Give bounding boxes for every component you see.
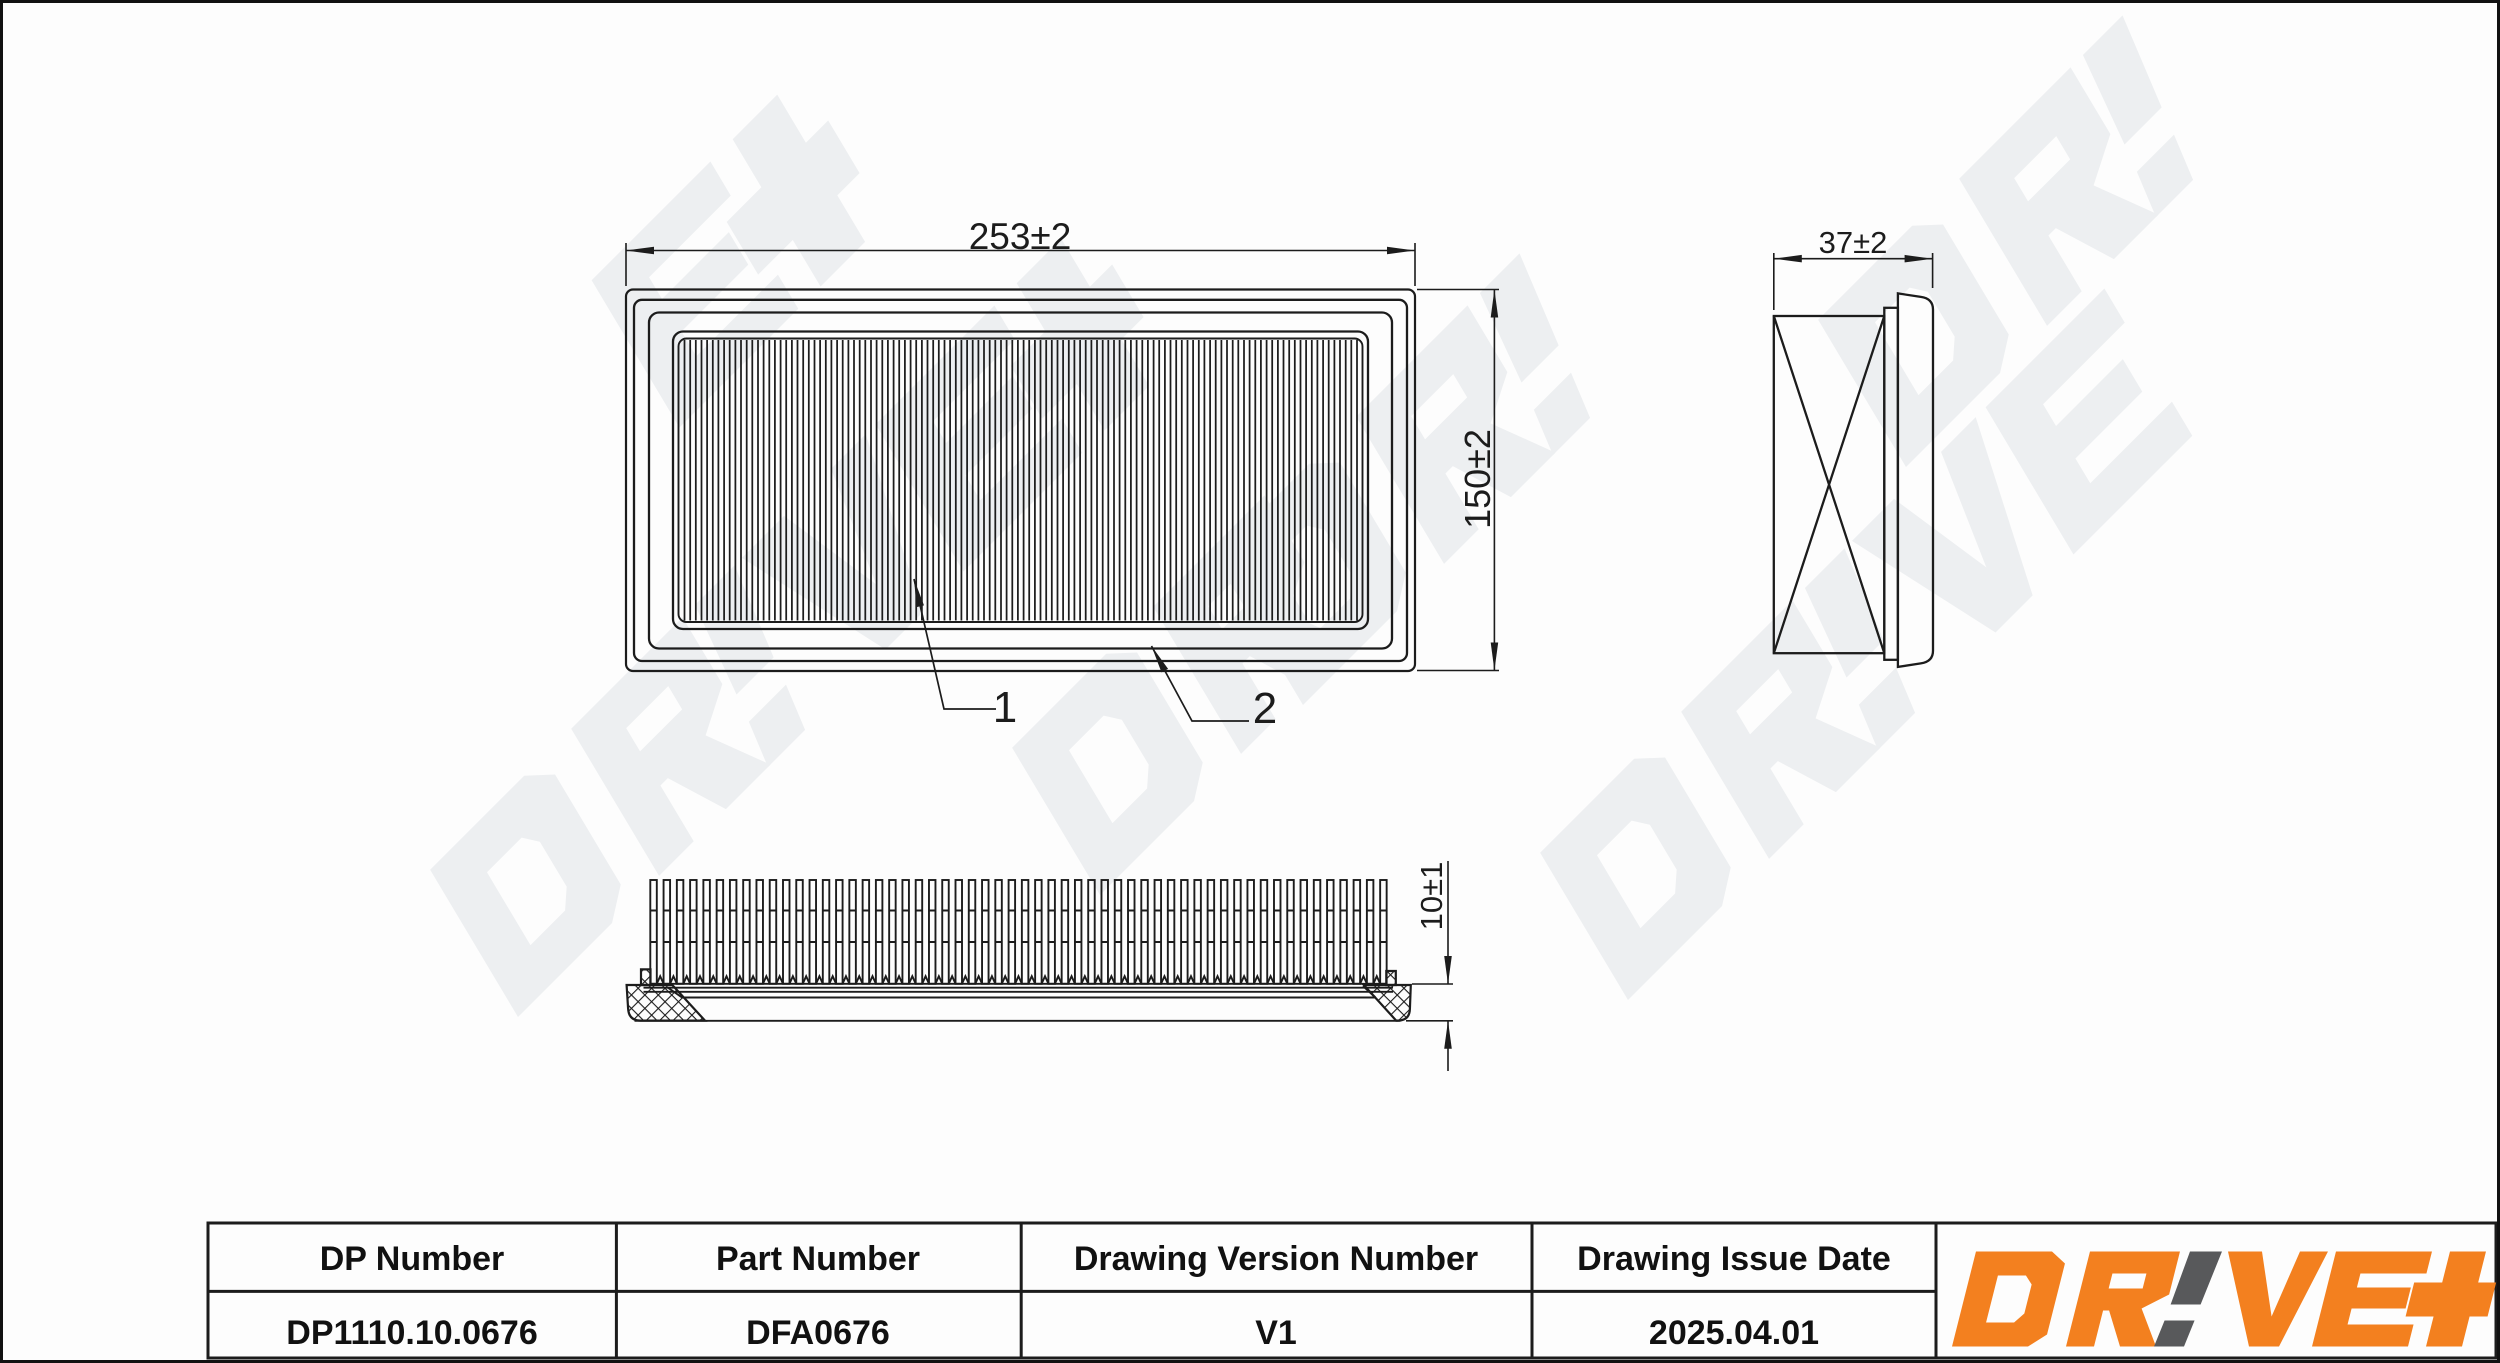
- svg-text:10±1: 10±1: [1414, 862, 1449, 931]
- svg-text:150±2: 150±2: [1457, 429, 1498, 529]
- svg-text:DP1110.10.0676: DP1110.10.0676: [286, 1314, 537, 1352]
- svg-text:Drawing Version Number: Drawing Version Number: [1074, 1240, 1478, 1278]
- svg-text:2: 2: [1253, 684, 1277, 733]
- svg-text:2025.04.01: 2025.04.01: [1649, 1314, 1819, 1352]
- svg-text:DP Number: DP Number: [320, 1240, 505, 1278]
- svg-text:37±2: 37±2: [1819, 225, 1888, 260]
- svg-text:1: 1: [993, 683, 1017, 732]
- svg-text:V1: V1: [1255, 1314, 1297, 1352]
- svg-text:Part Number: Part Number: [716, 1240, 920, 1278]
- svg-text:253±2: 253±2: [969, 216, 1072, 257]
- svg-text:Drawing Issue Date: Drawing Issue Date: [1577, 1240, 1891, 1278]
- svg-text:DFA0676: DFA0676: [746, 1314, 890, 1352]
